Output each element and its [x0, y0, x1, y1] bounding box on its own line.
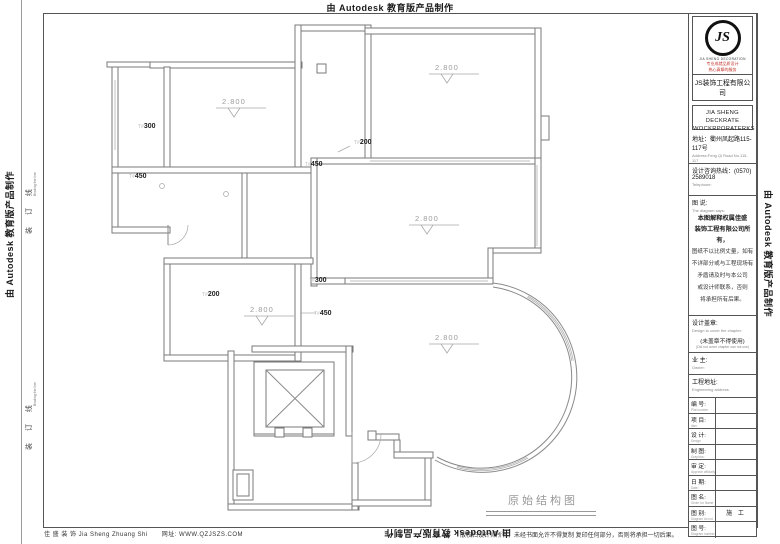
company-name-cn: JS装饰工程有限公司: [693, 74, 752, 97]
row-value: [716, 414, 756, 429]
svg-text:T#300: T#300: [309, 277, 327, 284]
svg-text:T#450: T#450: [305, 161, 323, 168]
seal-note-en: (Did not cover chapter can not use): [689, 345, 756, 349]
row-value: [716, 445, 756, 460]
note-bold1: 本图解释权属佳盛: [689, 213, 756, 224]
plan-title-underline: [486, 511, 596, 516]
note-line: 将承担所有后果。: [689, 294, 756, 306]
company-name-en-section: JIA SHENG DECKRATE WOCKRPORATERKS: [689, 103, 756, 132]
seal-note-cn: (未盖章不得使用): [689, 336, 756, 345]
site-section: 工程地址: Engineering address: [689, 375, 756, 398]
phone-cn: 设计咨询热线：(0570) 2589018: [689, 164, 756, 181]
note-bold2: 装饰工程有限公司所有，: [689, 224, 756, 246]
note-line: 矛盾请及时与本公司: [689, 270, 756, 282]
site-label-cn: 工程地址:: [689, 375, 756, 386]
curved-bay-wall: [435, 283, 577, 472]
table-row: 图 别:Diagram do not 施 工: [689, 507, 756, 523]
walls: [107, 25, 549, 510]
table-row: 编 号:Plat number: [689, 398, 756, 414]
row-value: [716, 476, 756, 491]
svg-text:T#200: T#200: [202, 291, 220, 298]
footer-website: 网址: WWW.QZJSZS.COM: [162, 532, 243, 538]
drawing-sheet: 由 Autodesk 教育版产品制作 由 Autodesk 教育版产品制作 由 …: [0, 0, 780, 544]
floor-plan: 2.800 2.800 2.800 2.800 2.800 T#300 T#20…: [0, 0, 780, 544]
phone-section: 设计咨询热线：(0570) 2589018 Telephone:: [689, 164, 756, 196]
row-value: 施 工: [716, 507, 756, 522]
ceiling-height-labels: 2.800 2.800 2.800 2.800 2.800: [216, 63, 479, 353]
note-line: 或设计师联系，否则: [689, 282, 756, 294]
logo-section: JS JIA SHENG DECORATION 专业成就品质设计 热心真挚的服务…: [689, 14, 756, 103]
table-row: 审 定:Approve officially: [689, 460, 756, 476]
plan-title: 原始结构图: [483, 492, 603, 508]
notes-section: 图 说: The diagram says: 本图解释权属佳盛 装饰工程有限公司…: [689, 196, 756, 316]
owner-label-en: Owner:: [689, 364, 756, 370]
height-label: 2.800: [435, 333, 459, 342]
company-logo-icon: JS: [705, 20, 741, 56]
row-value: [716, 460, 756, 475]
table-row: 图 名:Given for Name: [689, 491, 756, 507]
slogan-line2: 热心真挚的服务: [693, 67, 752, 73]
height-label: 2.800: [435, 63, 459, 72]
address-en: Address:Feng Qi Road No.115-117: [689, 152, 756, 163]
phone-en: Telephone:: [689, 181, 756, 187]
table-row: 制 图:Graphics:: [689, 445, 756, 461]
owner-section: 业 主: Owner:: [689, 353, 756, 375]
owner-label-cn: 业 主:: [689, 353, 756, 364]
height-label: 2.800: [250, 305, 274, 314]
row-value: [716, 398, 756, 413]
address-section: 地址：衢州凤起路115-117号 Address:Feng Qi Road No…: [689, 132, 756, 164]
footer-company: 佳 盛 装 饰 Jia Sheng Zhuang Shi网址: WWW.QZJS…: [44, 529, 243, 538]
note-line: 图纸不以比例丈量，如有: [689, 246, 756, 258]
site-label-en: Engineering address: [689, 386, 756, 392]
seal-label-cn: 设计盖章:: [689, 316, 756, 327]
address-cn: 地址：衢州凤起路115-117号: [689, 132, 756, 152]
row-value: [716, 522, 756, 538]
row-value: [716, 491, 756, 506]
seal-label-en: Design to cover the chapter:: [689, 327, 756, 333]
note-title-cn: 图 说:: [689, 196, 756, 207]
note-line: 不详部分或与工程现场有: [689, 258, 756, 270]
height-label: 2.800: [415, 214, 439, 223]
row-value: [716, 429, 756, 444]
footer-copyright: 版权归设计师所有，未经书面允许不得复制 复印任何部分，否则将承担一切后果。: [460, 530, 678, 539]
windows: [115, 80, 537, 281]
svg-text:T#200: T#200: [354, 139, 372, 146]
svg-text:T#450: T#450: [129, 173, 147, 180]
table-row: 项 目:Item: [689, 414, 756, 430]
table-row: 日 期:Date:: [689, 476, 756, 492]
table-row: 图 号:Diagram number: [689, 522, 756, 538]
height-label: 2.800: [222, 97, 246, 106]
title-block: JS JIA SHENG DECORATION 专业成就品质设计 热心真挚的服务…: [688, 13, 757, 537]
svg-text:T#300: T#300: [138, 123, 156, 130]
svg-text:T#450: T#450: [314, 310, 332, 317]
company-name-en1: JIA SHENG DECKRATE: [693, 109, 752, 125]
seal-section: 设计盖章: Design to cover the chapter: (未盖章不…: [689, 316, 756, 353]
company-name-en2: WOCKRPORATERKS: [693, 125, 752, 132]
elevator-shaft: [254, 362, 376, 440]
table-row: 设 计:Design: [689, 429, 756, 445]
